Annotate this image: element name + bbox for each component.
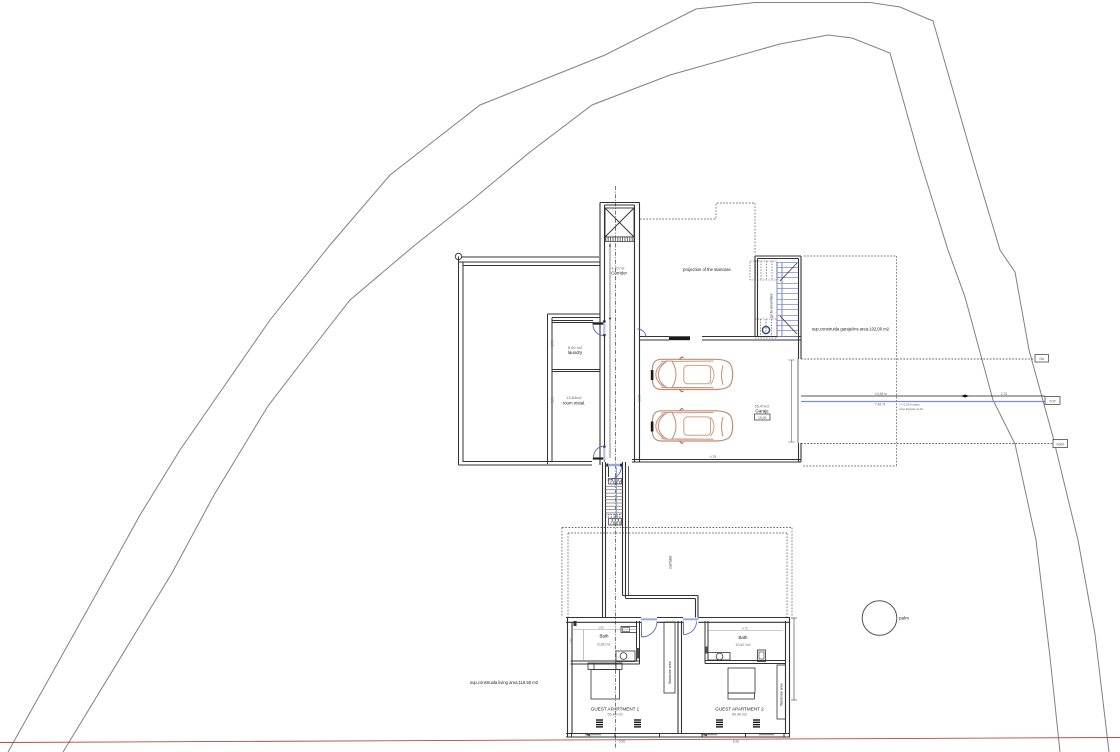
svg-text:3,96: 3,96	[551, 397, 555, 403]
svg-text:corridor: corridor	[668, 555, 673, 569]
svg-text:4,75: 4,75	[742, 627, 748, 631]
svg-text:19,05: 19,05	[758, 416, 767, 420]
svg-text:NA: NA	[1039, 357, 1044, 361]
svg-text:go to amenities: go to amenities	[770, 293, 774, 318]
svg-text:Corridor: Corridor	[611, 271, 627, 276]
svg-text:sup.construida garaje/ins area: sup.construida garaje/ins area:102,00 m2	[812, 327, 890, 332]
svg-text:Bath: Bath	[738, 635, 748, 640]
svg-text:room instal.: room instal.	[563, 401, 586, 406]
svg-text:laundry: laundry	[568, 350, 583, 355]
svg-text:5,96: 5,96	[733, 740, 739, 744]
svg-text:GUEST APARTMENT 2: GUEST APARTMENT 2	[715, 707, 764, 712]
svg-text:14,48 m: 14,48 m	[875, 392, 887, 396]
svg-text:BSM: BSM	[1057, 442, 1065, 446]
svg-text:+/- 0,00 forjado: +/- 0,00 forjado	[899, 403, 920, 407]
svg-text:8,38 m2: 8,38 m2	[598, 643, 611, 647]
svg-text:7,48 %: 7,48 %	[875, 403, 885, 407]
svg-text:5,96: 5,96	[619, 740, 625, 744]
svg-text:10,87 m2: 10,87 m2	[736, 643, 751, 647]
svg-text:Garaje: Garaje	[755, 409, 769, 414]
svg-text:Bath: Bath	[599, 634, 609, 639]
svg-text:TOP: TOP	[1049, 399, 1057, 403]
svg-text:cota forjado+0,10: cota forjado+0,10	[899, 407, 923, 411]
svg-text:4,78: 4,78	[710, 455, 717, 459]
svg-text:projection of the staircase: projection of the staircase	[683, 267, 731, 272]
svg-text:Wardrobe area: Wardrobe area	[668, 661, 672, 684]
svg-text:1,76: 1,76	[569, 638, 573, 644]
svg-text:2,76: 2,76	[1001, 392, 1008, 396]
svg-text:55,40 m2: 55,40 m2	[608, 713, 623, 717]
svg-text:1,90: 1,90	[598, 626, 604, 630]
svg-text:2,76: 2,76	[551, 340, 555, 346]
svg-text:Wardrobe area: Wardrobe area	[780, 683, 784, 706]
svg-text:60,40 m2: 60,40 m2	[732, 713, 747, 717]
svg-text:GUEST APARTMENT 1: GUEST APARTMENT 1	[591, 707, 640, 712]
svg-text:palm: palm	[899, 616, 909, 621]
svg-text:2,76: 2,76	[638, 395, 642, 402]
svg-text:sup.construida living area:116: sup.construida living area:116,50 m2	[470, 680, 539, 685]
svg-text:13,84m2: 13,84m2	[566, 395, 582, 400]
